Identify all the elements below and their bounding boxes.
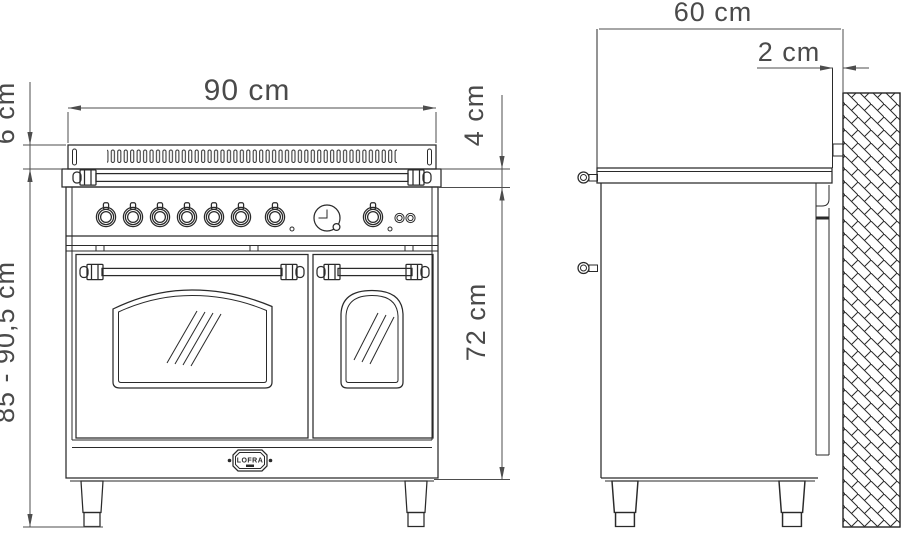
dimension-width-90cm: 90 cm [68,74,436,143]
leg [405,481,427,527]
panel-dot [388,227,392,231]
vent-slots [107,145,397,169]
brand-plate: LOFRA [228,450,273,471]
panel-dot [290,227,294,231]
oven-window [113,290,272,388]
front-legs [81,481,427,527]
oven-door-handle [317,264,429,279]
towel-rail-right-end [408,170,431,185]
oven-door-right [313,255,433,439]
dimension-gap-2cm: 2 cm [757,37,869,71]
technical-drawing: LOFRA [0,0,904,533]
back-panel [816,183,829,455]
width-label: 90 cm [204,74,291,107]
burner-knob [231,203,250,227]
oven-door-left [76,255,308,439]
leg [81,481,103,527]
worktop-slab [597,168,832,183]
control-panel [96,203,415,231]
brand-label: LOFRA [237,458,264,465]
range-cooker-dimension-drawing: LOFRA [0,0,904,533]
oven-door-handle [80,264,304,279]
side-view [578,29,900,527]
side-legs [612,481,805,527]
back-hook [816,185,829,206]
dimension-right-column: 4 cm 72 cm [434,84,510,480]
towel-rail-side-knob [578,172,598,183]
door-section-height-label: 72 cm [461,283,491,362]
overall-height-label: 85 - 90,5 cm [0,261,20,423]
hinge-strip [66,246,438,252]
leg [779,481,805,527]
burner-knob [177,203,196,227]
wall-bracket [833,144,843,156]
cooker-body [66,187,438,481]
wall-clearance-label: 2 cm [758,37,821,67]
back-fastener [816,217,829,220]
upstand-height-label: 6 cm [0,82,20,145]
wall-hatch [843,93,900,527]
burner-knob [204,203,223,227]
glass-reflection [167,311,221,366]
control-band-height-label: 4 cm [459,84,489,147]
burner-knob [96,203,115,227]
depth-label: 60 cm [674,0,753,27]
burner-knob [265,203,284,227]
door-handle-side-knob [578,263,598,274]
wall [843,93,900,527]
plinth: LOFRA [72,440,432,471]
burner-knob [123,203,142,227]
vent-grille [68,145,436,169]
towel-rail-left-end [73,170,96,185]
oven-window [341,291,403,389]
burner-knob [150,203,169,227]
dimension-left-column: 6 cm 85 - 90,5 cm [0,82,103,527]
indicator-lights [395,213,415,222]
front-view: LOFRA [62,145,441,527]
oven-knob [363,203,382,227]
glass-reflection [354,313,394,364]
clock-timer [314,205,340,231]
leg [612,481,638,527]
towel-rail [62,169,441,187]
